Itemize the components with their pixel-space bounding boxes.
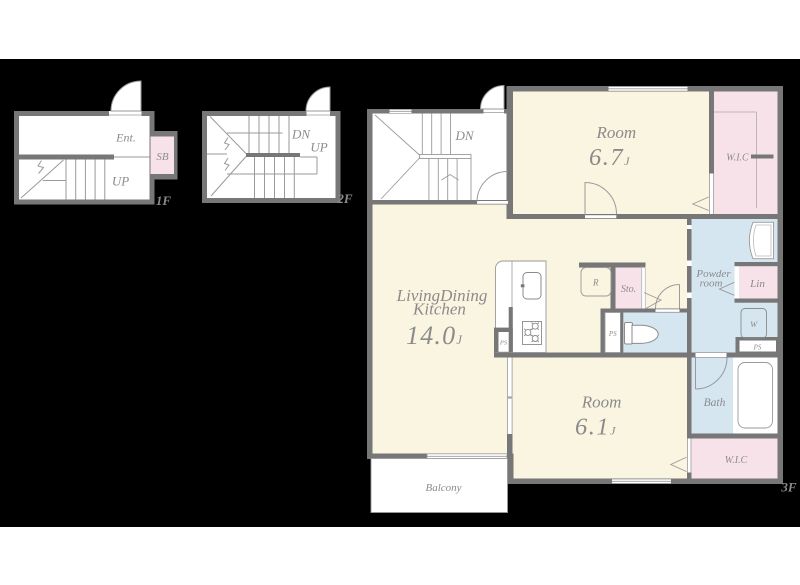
svg-text:UP: UP (310, 140, 327, 155)
svg-text:6.1J: 6.1J (575, 414, 616, 441)
svg-text:Room: Room (595, 123, 636, 142)
svg-text:W.I.C: W.I.C (725, 455, 748, 466)
svg-text:Sto.: Sto. (621, 284, 636, 295)
svg-text:W: W (750, 319, 758, 329)
svg-text:1F: 1F (156, 193, 172, 208)
svg-text:6.7J: 6.7J (589, 144, 630, 171)
svg-text:Ent.: Ent. (115, 131, 136, 145)
svg-text:PS: PS (608, 330, 617, 338)
svg-text:Bath: Bath (704, 397, 726, 409)
svg-text:DN: DN (291, 127, 311, 142)
svg-text:Kitchen: Kitchen (412, 300, 466, 319)
svg-text:Balcony: Balcony (425, 482, 461, 494)
svg-text:UP: UP (112, 174, 129, 189)
svg-text:SB: SB (156, 151, 169, 163)
svg-text:2F: 2F (336, 191, 353, 206)
svg-text:room: room (700, 278, 723, 290)
svg-text:PS: PS (499, 340, 508, 347)
svg-text:PS: PS (753, 344, 762, 352)
svg-text:Lin: Lin (749, 278, 765, 290)
svg-text:W.I.C: W.I.C (726, 153, 749, 164)
svg-text:3F: 3F (780, 480, 797, 495)
svg-text:Room: Room (581, 393, 622, 412)
svg-text:R: R (592, 278, 599, 288)
svg-text:14.0J: 14.0J (406, 321, 463, 350)
svg-text:DN: DN (454, 128, 474, 143)
